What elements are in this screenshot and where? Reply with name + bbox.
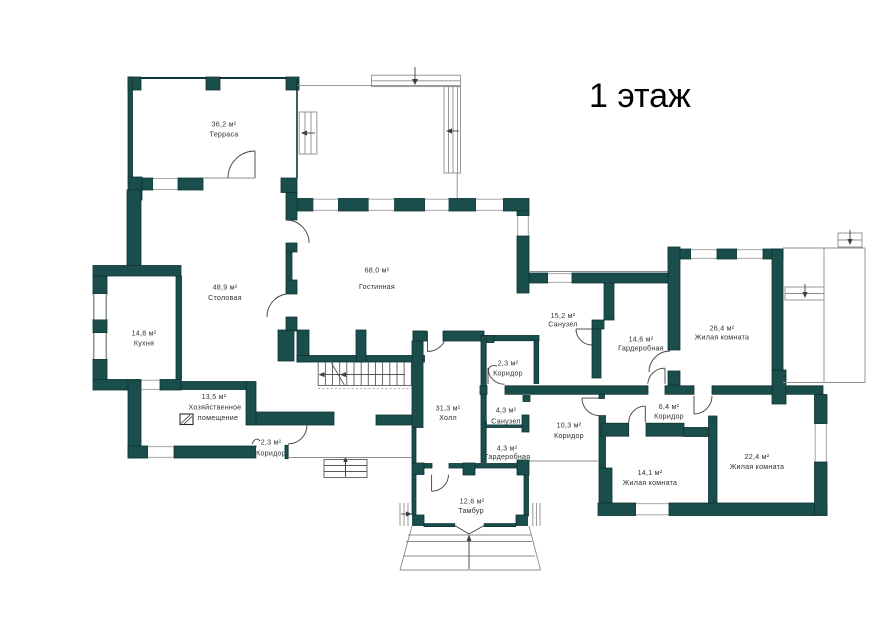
svg-text:31,3 м²: 31,3 м² [436, 405, 461, 413]
svg-text:Коридор: Коридор [493, 370, 523, 378]
svg-text:12,6 м²: 12,6 м² [460, 498, 485, 506]
svg-text:68,0 м²: 68,0 м² [365, 267, 390, 275]
svg-text:Столовая: Столовая [208, 294, 242, 302]
svg-text:4,3 м²: 4,3 м² [497, 445, 518, 453]
svg-text:1 этаж: 1 этаж [589, 77, 691, 115]
svg-text:22,4 м²: 22,4 м² [745, 453, 770, 461]
svg-text:15,2 м²: 15,2 м² [551, 312, 576, 320]
svg-text:14,8 м²: 14,8 м² [132, 330, 157, 338]
svg-text:Коридор: Коридор [554, 432, 584, 440]
svg-text:Терраса: Терраса [210, 131, 239, 139]
svg-text:Жилая комната: Жилая комната [695, 334, 750, 342]
svg-text:Кухня: Кухня [134, 340, 154, 348]
svg-text:Санузел: Санузел [548, 321, 577, 329]
svg-text:Санузел: Санузел [491, 418, 520, 426]
svg-text:Холл: Холл [439, 414, 457, 422]
svg-text:26,4 м²: 26,4 м² [710, 325, 735, 333]
svg-text:Гостинная: Гостинная [359, 283, 395, 291]
svg-text:4,3 м²: 4,3 м² [496, 407, 517, 415]
svg-text:13,5 м²: 13,5 м² [202, 393, 227, 401]
svg-text:Хозяйственное: Хозяйственное [189, 404, 242, 412]
svg-text:2,3 м²: 2,3 м² [261, 439, 282, 447]
svg-text:Коридор: Коридор [256, 450, 286, 458]
svg-text:36,2 м²: 36,2 м² [212, 121, 237, 129]
svg-text:10,3 м²: 10,3 м² [557, 422, 582, 430]
svg-text:Гардеробная: Гардеробная [618, 345, 664, 353]
svg-text:6,4 м²: 6,4 м² [659, 403, 680, 411]
svg-text:Жилая комната: Жилая комната [730, 463, 785, 471]
svg-text:14,6 м²: 14,6 м² [629, 336, 654, 344]
svg-text:Жилая комната: Жилая комната [623, 479, 678, 487]
svg-text:помещение: помещение [198, 414, 238, 422]
svg-text:Тамбур: Тамбур [458, 507, 484, 515]
svg-text:14,1 м²: 14,1 м² [638, 469, 663, 477]
svg-text:Коридор: Коридор [654, 413, 684, 421]
svg-text:48,9 м²: 48,9 м² [213, 284, 238, 292]
svg-text:2,3 м²: 2,3 м² [498, 360, 519, 368]
